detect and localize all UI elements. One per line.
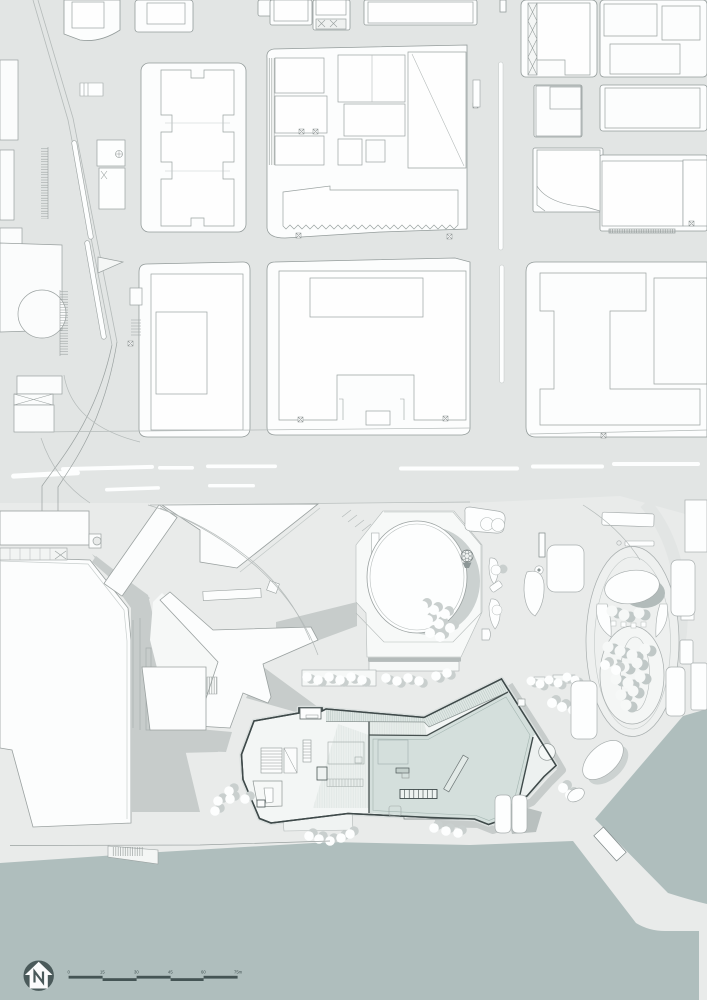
svg-text:30: 30 — [134, 970, 139, 975]
svg-text:45: 45 — [168, 970, 173, 975]
svg-text:75m: 75m — [234, 970, 243, 975]
svg-text:15: 15 — [100, 970, 105, 975]
svg-text:60: 60 — [201, 970, 206, 975]
